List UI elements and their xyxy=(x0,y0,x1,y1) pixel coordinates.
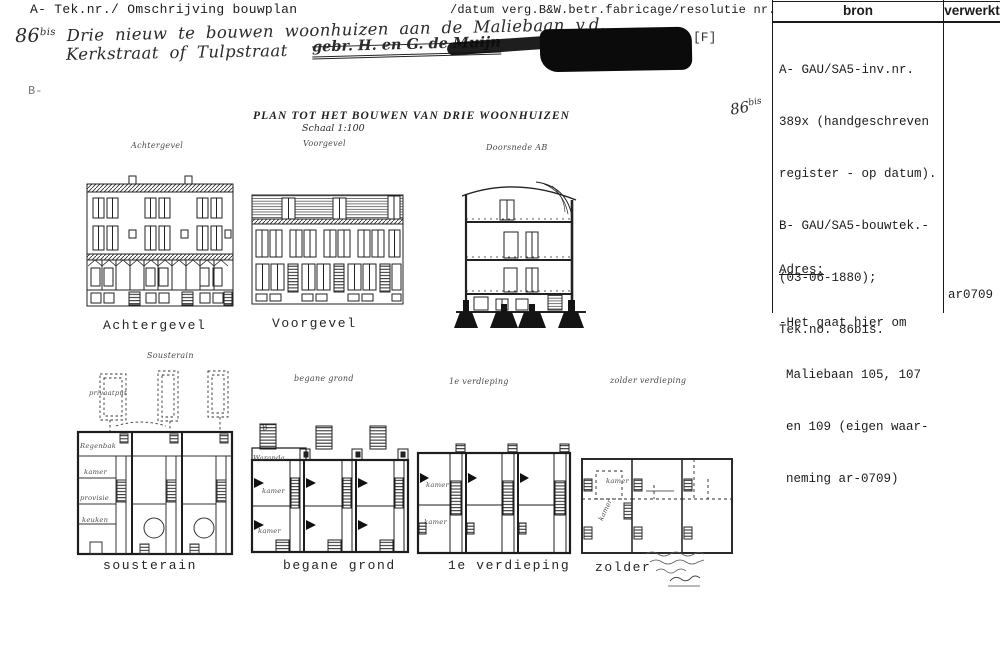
hand-label-sousterain: Sousterain xyxy=(147,351,194,360)
achtergevel-upper-windows xyxy=(93,198,222,218)
verwerkt-value: ar0709 xyxy=(948,288,993,302)
handwritten-number-sup: bis xyxy=(40,27,56,38)
adres-heading: Adres: xyxy=(779,262,929,279)
room-label-kamer: kamer xyxy=(606,477,629,485)
hand-label-voorgevel: Voorgevel xyxy=(303,139,346,148)
bron-line: 389x (handgeschreven xyxy=(779,114,937,130)
archive-card: A- Tek.nr./ Omschrijving bouwplan /datum… xyxy=(0,0,1000,649)
achtergevel-middle-windows xyxy=(93,226,231,250)
handwritten-86bis-sup: bis xyxy=(748,96,763,108)
adres-line: en 109 (eigen waar- xyxy=(779,419,929,435)
handwritten-description-line2: Kerkstraat of Tulpstraat xyxy=(66,41,288,64)
room-label-provisie: provisie xyxy=(80,494,109,502)
room-label-kamer: kamer xyxy=(262,487,285,495)
hand-label-doorsnede: Doorsnede AB xyxy=(486,143,548,152)
voorgevel-ground-floor xyxy=(256,264,401,292)
label-begane-grond: begane grond xyxy=(283,558,396,573)
label-voorgevel: Voorgevel xyxy=(272,316,357,331)
sousterain-annexes xyxy=(100,371,228,432)
sheet-scale: Schaal 1:100 xyxy=(302,123,365,134)
label-1e-verdieping: 1e verdieping xyxy=(448,558,570,573)
voorgevel-basement xyxy=(256,294,401,301)
room-label-regenbak: Regenbak xyxy=(80,442,116,450)
table-rule-top xyxy=(772,1,1000,2)
column-header-bron: bron xyxy=(773,3,943,18)
table-rule-middle xyxy=(943,0,944,313)
room-label-kamer: kamer xyxy=(258,527,281,535)
adres-line: Maliebaan 105, 107 xyxy=(779,367,929,383)
redaction-tag: [F] xyxy=(693,30,716,45)
table-rule-header xyxy=(772,21,1000,23)
achtergevel-drawing xyxy=(84,172,236,312)
redaction-block xyxy=(540,27,693,73)
adres-line: -Het gaat hier om xyxy=(779,315,929,331)
room-label-waranda: Waranda xyxy=(253,454,285,462)
adres-line: neming ar-0709) xyxy=(779,471,929,487)
voorgevel-upper-windows xyxy=(256,230,400,257)
achtergevel-basement xyxy=(91,292,232,305)
label-achtergevel: Achtergevel xyxy=(103,318,206,333)
doorsnede-drawing xyxy=(452,170,590,334)
zolder-dashed-partitions xyxy=(582,459,732,499)
zolder-plan-drawing xyxy=(576,451,738,559)
label-sousterain: sousterain xyxy=(103,558,197,573)
adres-block: Adres: -Het gaat hier om Maliebaan 105, … xyxy=(779,226,929,523)
doorsnede-floors xyxy=(466,219,572,294)
hand-label-begane-grond: begane grond xyxy=(294,374,354,383)
room-label-keuken: keuken xyxy=(82,516,108,524)
hand-label-1e-verdieping: 1e verdieping xyxy=(449,377,509,386)
handwritten-86bis: 86bis xyxy=(729,95,764,118)
room-label-kamer: kamer xyxy=(84,468,107,476)
room-label-kamer: kamer xyxy=(424,518,447,526)
bron-line: A- GAU/SA5-inv.nr. xyxy=(779,62,937,78)
sousterain-plan-drawing xyxy=(70,366,238,560)
handwritten-number: 86 xyxy=(15,25,40,48)
header-left: A- Tek.nr./ Omschrijving bouwplan xyxy=(30,2,297,17)
hand-label-zolder-verdieping: zolder verdieping xyxy=(610,376,686,385)
verdieping-plan-drawing xyxy=(414,441,574,559)
achtergevel-veranda xyxy=(88,260,228,290)
bron-line: register - op datum). xyxy=(779,166,937,182)
hand-label-achtergevel: Achtergevel xyxy=(131,141,183,150)
sheet-title: PLAN TOT HET BOUWEN VAN DRIE WOONHUIZEN xyxy=(253,110,570,122)
b-mark: B- xyxy=(28,84,42,98)
room-label-kamer: kamer xyxy=(426,481,449,489)
table-rule-left xyxy=(772,0,773,313)
voorgevel-drawing xyxy=(249,181,406,308)
column-header-verwerkt: verwerkt xyxy=(944,3,1000,18)
handwritten-note-illegible xyxy=(640,548,735,603)
